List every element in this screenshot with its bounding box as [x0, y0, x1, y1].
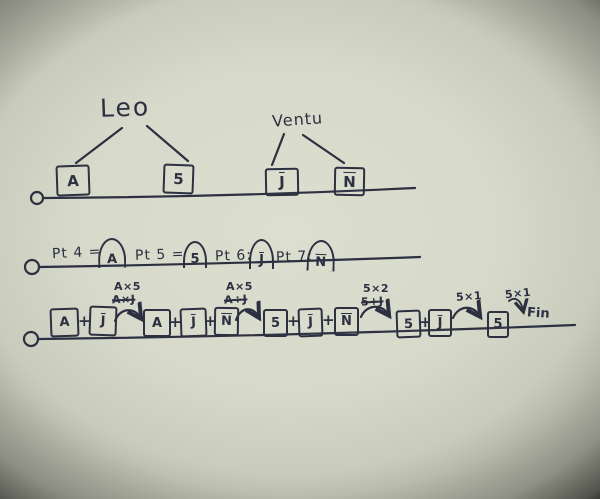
- hand-drawn-diagram-photo: Leo Ventu A 5 J N Pt 4 = A Pt 5 = 5 Pt 6…: [0, 0, 600, 499]
- crossed-annotation: 5+J: [361, 294, 384, 308]
- seq-box: N: [334, 307, 359, 336]
- leo-edge-left: [76, 128, 122, 163]
- point-7-arch: N: [306, 240, 335, 272]
- seq-box: J: [428, 309, 452, 337]
- plus-sign: +: [322, 311, 335, 329]
- fin-label: Fin: [527, 305, 551, 322]
- crossed-annotation: A÷J: [224, 292, 248, 306]
- arch-letter: N: [315, 255, 326, 270]
- point-6-arch: J: [249, 239, 274, 269]
- leo-edge-right: [147, 126, 188, 161]
- seq-box: N: [214, 307, 240, 336]
- line3-start-circle: [24, 332, 38, 346]
- seq-box: 5: [396, 310, 422, 339]
- seq-box: J: [88, 306, 117, 337]
- seq-box: J: [298, 308, 324, 338]
- card-letter: J: [279, 173, 285, 191]
- seq-letter: J: [308, 315, 313, 330]
- card-box-J: J: [265, 168, 299, 197]
- point-5-arch: 5: [183, 241, 207, 268]
- seq-letter: N: [341, 314, 352, 329]
- arch-letter: J: [259, 253, 264, 268]
- line2-start-circle: [25, 260, 39, 274]
- arch-letter: 5: [190, 252, 199, 267]
- card-box-5: 5: [162, 163, 194, 194]
- seq-box: 5: [263, 309, 288, 337]
- seq-letter: J: [100, 313, 105, 328]
- card-box-N: N: [334, 167, 366, 197]
- player-right-name: Ventu: [271, 108, 323, 131]
- step-annotation: 5×2: [363, 282, 389, 295]
- card-letter: A: [67, 171, 79, 189]
- card-box-A: A: [55, 164, 90, 196]
- player-left-name: Leo: [100, 92, 151, 123]
- seq-box: A: [143, 309, 171, 337]
- step-annotation: A×5: [114, 280, 141, 293]
- seq-box: A: [50, 308, 80, 338]
- step-annotation: A×5: [226, 280, 253, 293]
- point-5-label: Pt 5 =: [135, 246, 185, 264]
- line1-start-circle: [31, 192, 43, 204]
- seq-letter: N: [221, 314, 232, 329]
- curved-arrow-icon: [115, 310, 140, 321]
- seq-letter: A: [59, 315, 70, 330]
- point-4-arch: A: [98, 238, 127, 268]
- seq-letter: J: [438, 316, 443, 331]
- arch-letter: A: [107, 252, 117, 267]
- seq-box: 5: [487, 311, 509, 338]
- step-annotation: 5×1: [456, 289, 483, 304]
- curved-arrow-icon: [236, 309, 258, 320]
- ventu-edge-left: [272, 134, 284, 165]
- seq-letter: A: [152, 316, 162, 331]
- seq-letter: J: [191, 315, 196, 330]
- seq-letter: 5: [404, 316, 414, 331]
- seq-letter: 5: [271, 316, 280, 331]
- ventu-edge-right: [303, 135, 344, 163]
- point-6-label: Pt 6:: [215, 247, 253, 264]
- step-annotation: 5×1: [504, 286, 531, 302]
- card-letter: 5: [173, 170, 184, 188]
- card-letter: N: [343, 172, 356, 190]
- seq-letter: 5: [493, 317, 502, 332]
- crossed-annotation: A×J: [112, 293, 136, 307]
- point-4-label: Pt 4 =: [52, 244, 102, 263]
- curved-arrow-icon: [453, 308, 479, 318]
